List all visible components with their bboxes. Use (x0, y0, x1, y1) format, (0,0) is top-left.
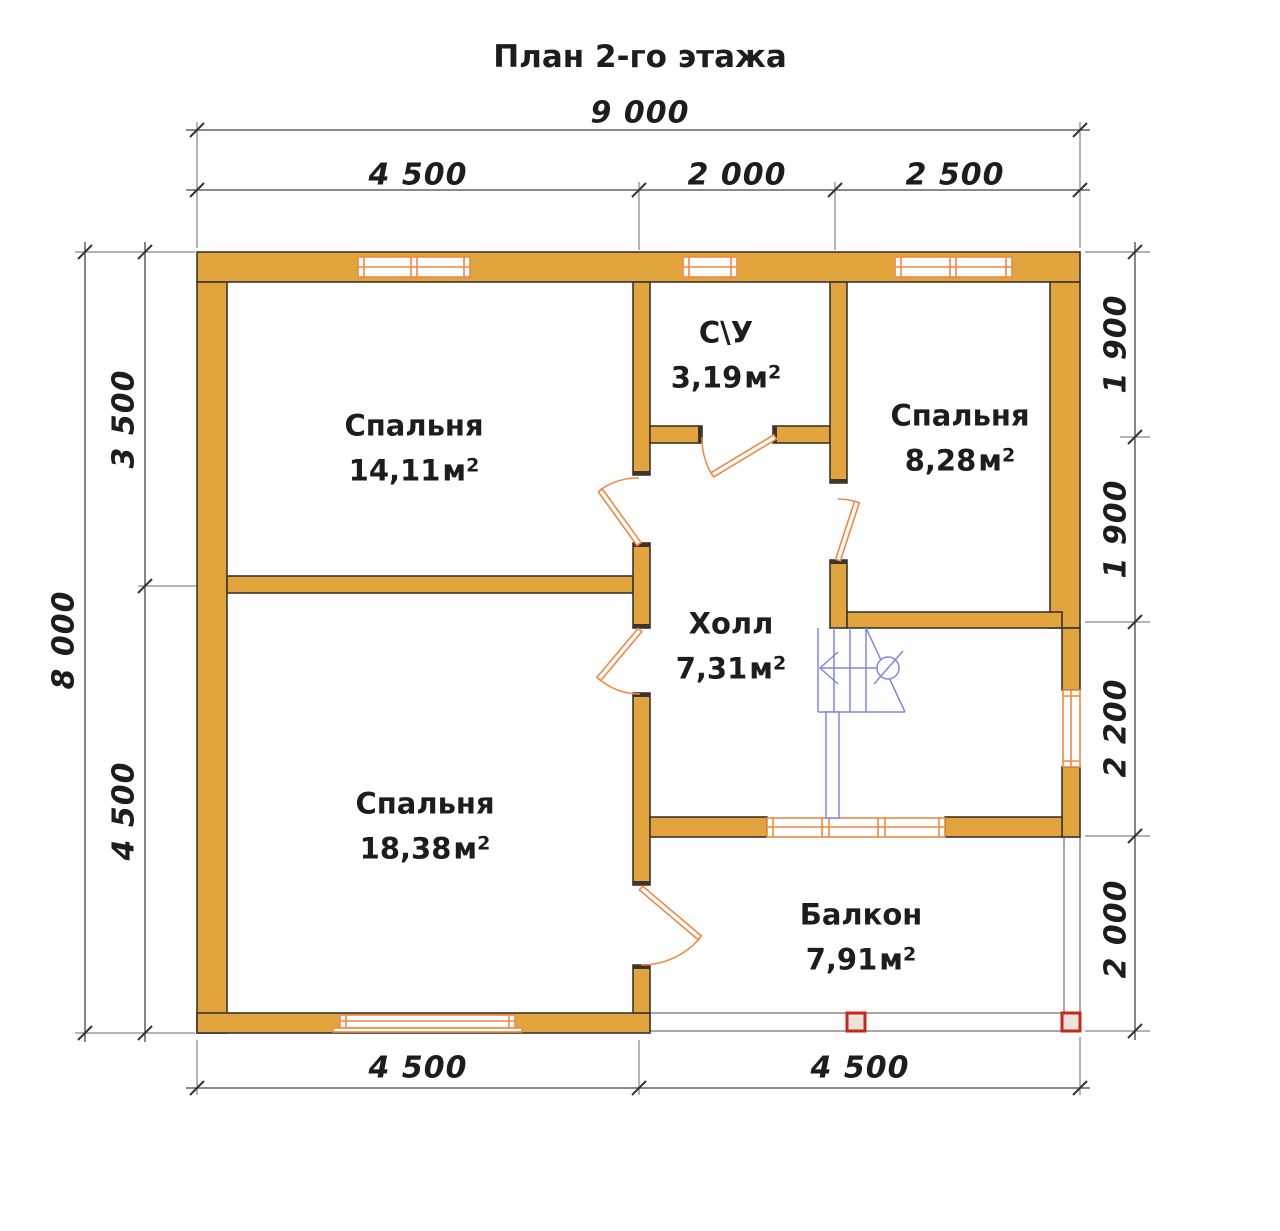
window-bedroom3-bottom (333, 1015, 522, 1032)
window-bedroom2-top (895, 257, 1012, 277)
dim-bottom-seg-2: 4 500 (811, 1051, 910, 1086)
stairs-direction-arrow (820, 652, 884, 684)
dim-top-total: 9 000 (591, 96, 690, 131)
door-bath (702, 435, 776, 477)
wall-exterior-left (197, 282, 227, 1033)
floor-plan-page: { "title": "План 2-го этажа", "rooms": [… (0, 0, 1280, 1231)
room-name: Спальня (344, 406, 483, 446)
room-name: Спальня (890, 396, 1029, 436)
wall-right-mid-upper (1062, 628, 1080, 690)
dim-top-seg-3: 2 500 (906, 158, 1005, 193)
dim-right-seg-2: 1 900 (1099, 480, 1134, 579)
room-label-bedroom1: Спальня 14,11м2 (344, 406, 483, 491)
stairs (818, 628, 905, 818)
wall-central-4 (633, 965, 650, 1013)
room-name: Балкон (800, 895, 923, 935)
dim-top-seg-2: 2 000 (688, 158, 787, 193)
room-label-bathroom: С\У 3,19м2 (671, 313, 782, 398)
room-name: С\У (671, 313, 782, 353)
wall-exterior-right (1050, 282, 1080, 628)
dim-right-seg-4: 2 000 (1099, 880, 1134, 979)
wall-bath-right-lower (830, 560, 847, 628)
plan-title: План 2-го этажа (493, 39, 787, 75)
window-hall-balcony (767, 818, 945, 837)
wall-bath-bottom-left (650, 426, 702, 443)
room-label-bedroom2: Спальня 8,28м2 (890, 396, 1029, 481)
wall-balcony-right (945, 817, 1062, 837)
room-label-bedroom3: Спальня 18,38м2 (355, 784, 494, 869)
walls (197, 252, 1080, 1033)
dim-right-seg-3: 2 200 (1099, 679, 1134, 778)
dim-top-seg-1: 4 500 (369, 158, 468, 193)
dim-left-total: 8 000 (47, 591, 82, 690)
stairs-lower-flight (826, 712, 839, 818)
room-label-hall: Холл 7,31м2 (676, 604, 787, 689)
column-corner (1062, 1013, 1080, 1031)
wall-bedroom2-bottom (847, 612, 1062, 628)
dim-left-seg-1: 3 500 (107, 370, 142, 469)
door-bedroom3-balcony (639, 886, 701, 965)
dim-bottom-seg-1: 4 500 (369, 1051, 468, 1086)
room-label-balcony: Балкон 7,91м2 (800, 895, 923, 980)
window-bath-top (683, 257, 737, 277)
window-right-wall (1063, 690, 1080, 767)
column-center (847, 1013, 865, 1031)
floor-plan-drawing (0, 0, 1280, 1231)
room-name: Спальня (355, 784, 494, 824)
wall-caps (633, 426, 847, 969)
wall-balcony-left (650, 817, 767, 837)
door-hall-bedroom1 (598, 478, 641, 545)
wall-central-3 (633, 693, 650, 885)
door-hall-bedroom3 (597, 628, 642, 694)
wall-bedroom-divider (227, 576, 633, 593)
window-bedroom1-top (358, 257, 470, 277)
dim-left-seg-2: 4 500 (107, 762, 142, 861)
wall-bath-right-upper (830, 282, 847, 483)
wall-central-2 (633, 543, 650, 628)
dim-right-seg-1: 1 900 (1099, 295, 1134, 394)
wall-right-mid-lower (1062, 767, 1080, 837)
wall-bath-bottom-right (773, 426, 830, 443)
door-hall-bedroom2 (836, 499, 860, 561)
wall-central-1 (633, 282, 650, 475)
room-name: Холл (676, 604, 787, 644)
